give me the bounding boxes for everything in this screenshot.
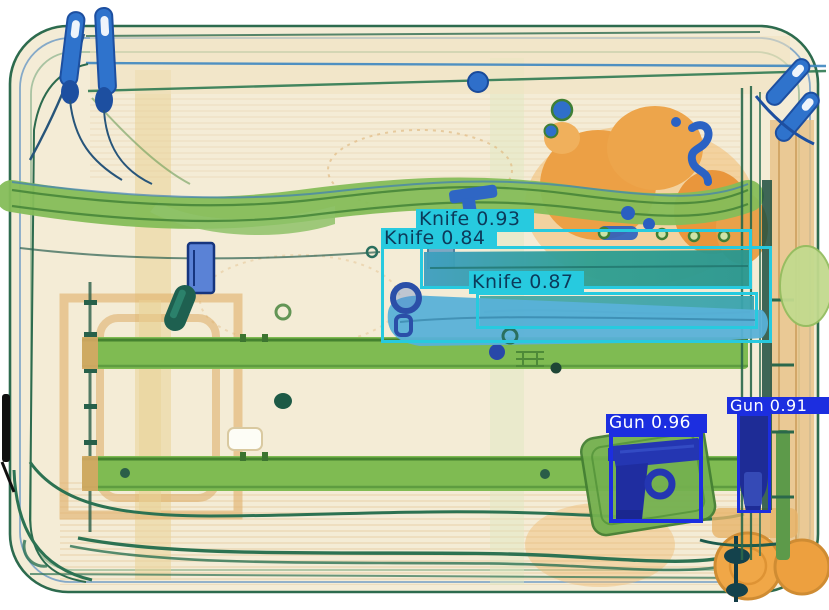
detection-box-knife-087	[476, 292, 758, 329]
detections-overlay: Knife 0.93Knife 0.84Knife 0.87Gun 0.96Gu…	[0, 0, 829, 610]
detection-box-gun-096	[609, 433, 703, 523]
detection-label-gun-096: Gun 0.96	[606, 414, 707, 433]
detection-box-gun-091	[737, 413, 771, 513]
detection-label-knife-084: Knife 0.84	[381, 228, 497, 248]
xray-screenshot: Knife 0.93Knife 0.84Knife 0.87Gun 0.96Gu…	[0, 0, 829, 610]
detection-label-gun-091: Gun 0.91	[727, 397, 829, 414]
detection-label-knife-087: Knife 0.87	[469, 271, 584, 294]
detection-label-knife-093: Knife 0.93	[416, 209, 534, 229]
